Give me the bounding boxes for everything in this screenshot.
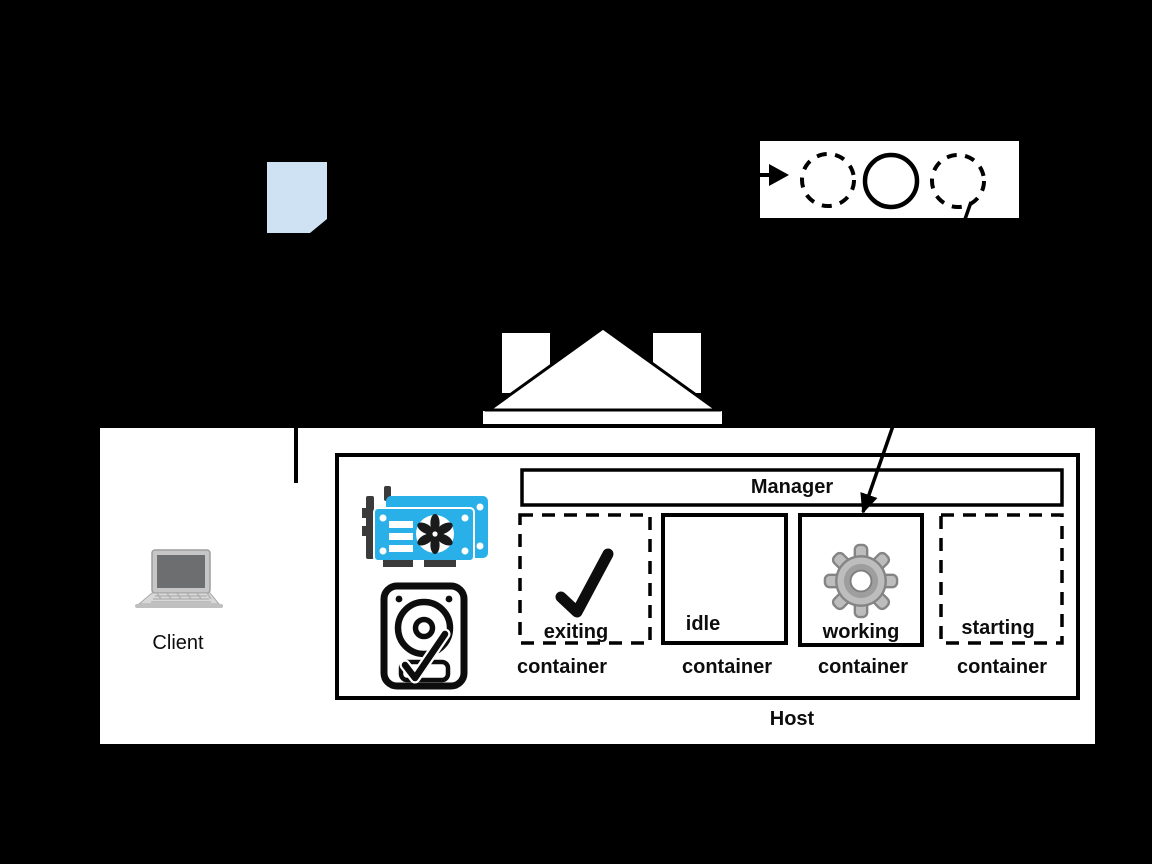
document-fold-icon xyxy=(310,219,327,233)
container-state-exiting: exiting xyxy=(544,621,608,643)
host-label: Host xyxy=(770,708,814,730)
container-state-starting: starting xyxy=(961,617,1034,639)
container-caption: container xyxy=(957,656,1047,678)
gpu-icon xyxy=(362,484,490,568)
container-caption: container xyxy=(682,656,772,678)
flow-box xyxy=(760,141,1019,218)
bank-pillar-left xyxy=(502,333,550,393)
container-caption: container xyxy=(517,656,607,678)
gear-icon xyxy=(823,543,899,619)
laptop-icon xyxy=(131,549,227,609)
client-label: Client xyxy=(152,632,203,655)
container-state-idle: idle xyxy=(686,613,720,635)
container-caption: container xyxy=(818,656,908,678)
diagram-canvas: Client xyxy=(0,0,1152,864)
manager-label: Manager xyxy=(522,476,1062,498)
container-state-working: working xyxy=(823,621,900,643)
bank-pillar-right xyxy=(653,333,701,393)
checkmark-icon xyxy=(548,545,618,620)
bank-base xyxy=(483,411,722,424)
document-icon xyxy=(267,162,327,233)
hdd-icon xyxy=(379,582,469,690)
